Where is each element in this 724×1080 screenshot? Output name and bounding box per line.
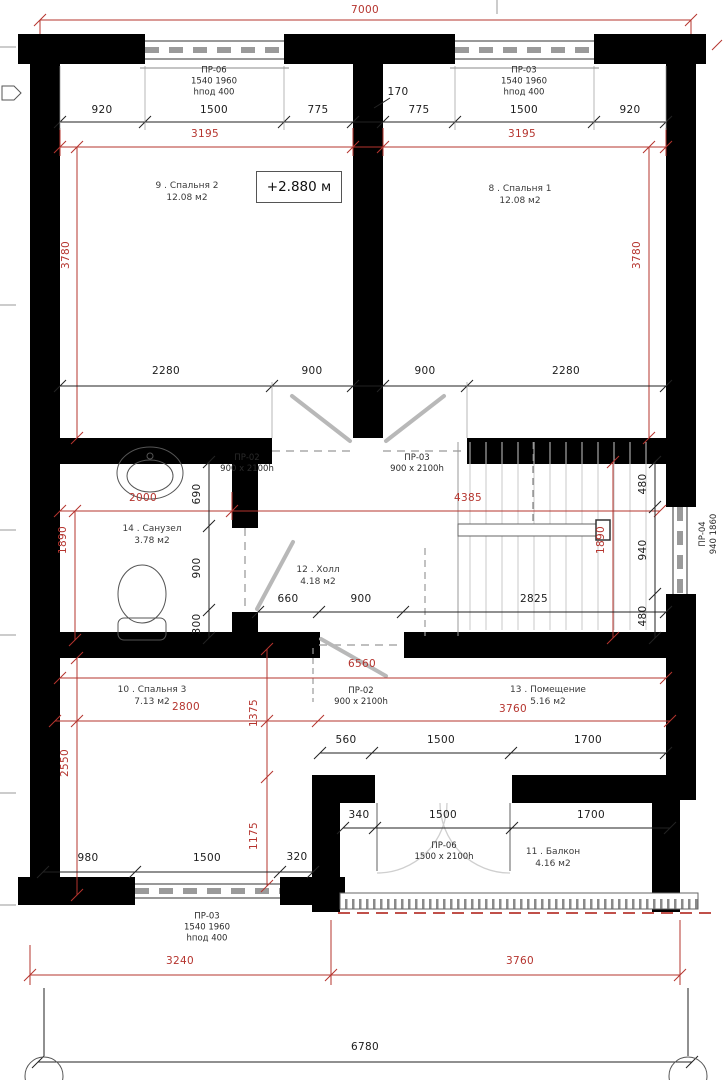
- dim-3760-bottom: 3760: [506, 955, 534, 967]
- dim-mid-900-l: 900: [302, 365, 323, 377]
- dim-top-920-l: 920: [92, 104, 113, 116]
- dim-row2-1700: 1700: [577, 809, 605, 821]
- dim-6560: 6560: [348, 658, 376, 670]
- code-line: ПР-06: [191, 66, 237, 77]
- dim-hall-2825: 2825: [520, 593, 548, 605]
- dim-row2-340: 340: [349, 809, 370, 821]
- dim-3195-right: 3195: [508, 128, 536, 140]
- dim-right-480-a: 480: [637, 474, 649, 495]
- dim-3780-right: 3780: [631, 241, 643, 269]
- dim-wall-170: 170: [388, 86, 409, 98]
- window-bottom-icon: [135, 884, 280, 898]
- code-line: 1500 x 2100h: [414, 852, 473, 863]
- dim-total-7000: 7000: [351, 4, 379, 16]
- door-swing-bedroom1-icon: [386, 396, 444, 441]
- room-area: 12.08 м2: [489, 195, 552, 207]
- dim-bl-320: 320: [287, 851, 308, 863]
- code-line: ПР-03: [501, 66, 547, 77]
- dim-3240-bottom: 3240: [166, 955, 194, 967]
- code-line: ПР-02: [220, 453, 274, 464]
- code-line: hпод 400: [501, 88, 547, 99]
- window-right-icon: [673, 507, 687, 594]
- dim-top-1500-l: 1500: [200, 104, 228, 116]
- dim-row2-1500: 1500: [429, 809, 457, 821]
- code-line: ПР-02: [334, 686, 388, 697]
- door-label-balcony: ПР-06 1500 x 2100h: [414, 841, 473, 863]
- code-line: 900 x 2100h: [220, 464, 274, 475]
- dim-hall-900: 900: [351, 593, 372, 605]
- window-label-top-left: ПР-06 1540 1960 hпод 400: [191, 66, 237, 99]
- dim-bath-900: 900: [191, 558, 203, 579]
- window-top-right-icon: [450, 41, 599, 68]
- room-label-bedroom2: 9 . Спальня 2 12.08 м2: [156, 180, 219, 204]
- floor-plan-drawing: [0, 0, 724, 1080]
- code-line: 940 1860: [709, 514, 720, 555]
- code-line: 900 x 2100h: [390, 464, 444, 475]
- dim-4385: 4385: [454, 492, 482, 504]
- code-line: ПР-04: [698, 514, 709, 555]
- room-name: 10 . Спальня 3: [118, 684, 187, 696]
- dim-row1-560: 560: [336, 734, 357, 746]
- room-name: 8 . Спальня 1: [489, 183, 552, 195]
- dim-top-775-l: 775: [308, 104, 329, 116]
- dim-mid-2280-r: 2280: [552, 365, 580, 377]
- dim-1890-right: 1890: [595, 526, 607, 554]
- dim-right-940: 940: [637, 540, 649, 561]
- balcony-railing-icon: [340, 893, 698, 909]
- dim-bath-690: 690: [191, 484, 203, 505]
- room-label-hall: 12 . Холл 4.18 м2: [296, 564, 339, 588]
- door-swing-bedroom2-icon: [292, 396, 350, 441]
- code-line: 1540 1960: [184, 923, 230, 934]
- code-line: ПР-06: [414, 841, 473, 852]
- dim-1890-left: 1890: [57, 526, 69, 554]
- room-name: 9 . Спальня 2: [156, 180, 219, 192]
- dim-mid-900-r: 900: [415, 365, 436, 377]
- window-top-left-icon: [140, 41, 289, 68]
- code-line: hпод 400: [184, 934, 230, 945]
- door-label-bedroom1: ПР-03 900 x 2100h: [390, 453, 444, 475]
- walls: [18, 34, 706, 912]
- code-line: hпод 400: [191, 88, 237, 99]
- dim-1175: 1175: [248, 822, 260, 850]
- dim-3195-left: 3195: [191, 128, 219, 140]
- room-name: 12 . Холл: [296, 564, 339, 576]
- code-line: ПР-03: [184, 912, 230, 923]
- dim-hall-660: 660: [278, 593, 299, 605]
- window-label-right: ПР-04 940 1860: [698, 514, 720, 555]
- dim-top-920-r: 920: [620, 104, 641, 116]
- door-opening-dashes: [245, 451, 467, 645]
- room-label-bathroom: 14 . Санузел 3.78 м2: [122, 523, 181, 547]
- dim-bl-980: 980: [78, 852, 99, 864]
- dim-2550: 2550: [59, 749, 71, 777]
- dim-top-775-r: 775: [409, 104, 430, 116]
- dim-1375: 1375: [248, 699, 260, 727]
- dim-mid-2280-l: 2280: [152, 365, 180, 377]
- code-line: 1540 1960: [191, 77, 237, 88]
- floor-plan: +2.880 м 9 . Спальня 2 12.08 м2 8 . Спал…: [0, 0, 724, 1080]
- door-label-room13: ПР-02 900 x 2100h: [334, 686, 388, 708]
- code-line: 900 x 2100h: [334, 697, 388, 708]
- dim-row1-1700: 1700: [574, 734, 602, 746]
- room-area: 12.08 м2: [156, 192, 219, 204]
- dim-right-480-b: 480: [637, 606, 649, 627]
- room-area: 3.78 м2: [122, 535, 181, 547]
- dim-2800: 2800: [172, 701, 200, 713]
- level-mark: +2.880 м: [256, 171, 342, 203]
- room-name: 13 . Помещение: [510, 684, 586, 696]
- room-label-balcony: 11 . Балкон 4.16 м2: [526, 846, 580, 870]
- dim-3780-left: 3780: [60, 241, 72, 269]
- dim-bl-1500: 1500: [193, 852, 221, 864]
- code-line: ПР-03: [390, 453, 444, 464]
- door-label-bedroom2: ПР-02 900 x 2100h: [220, 453, 274, 475]
- window-label-top-right: ПР-03 1540 1960 hпод 400: [501, 66, 547, 99]
- room-area: 4.18 м2: [296, 576, 339, 588]
- dim-row1-1500: 1500: [427, 734, 455, 746]
- room-name: 14 . Санузел: [122, 523, 181, 535]
- code-line: 1540 1960: [501, 77, 547, 88]
- window-label-bottom: ПР-03 1540 1960 hпод 400: [184, 912, 230, 945]
- dim-2000: 2000: [129, 492, 157, 504]
- dim-total-6780: 6780: [351, 1041, 379, 1053]
- dim-top-1500-r: 1500: [510, 104, 538, 116]
- dim-3760-mid: 3760: [499, 703, 527, 715]
- dim-bath-300: 300: [191, 614, 203, 635]
- room-label-bedroom1: 8 . Спальня 1 12.08 м2: [489, 183, 552, 207]
- toilet-icon: [118, 565, 166, 640]
- room-area: 4.16 м2: [526, 858, 580, 870]
- room-name: 11 . Балкон: [526, 846, 580, 858]
